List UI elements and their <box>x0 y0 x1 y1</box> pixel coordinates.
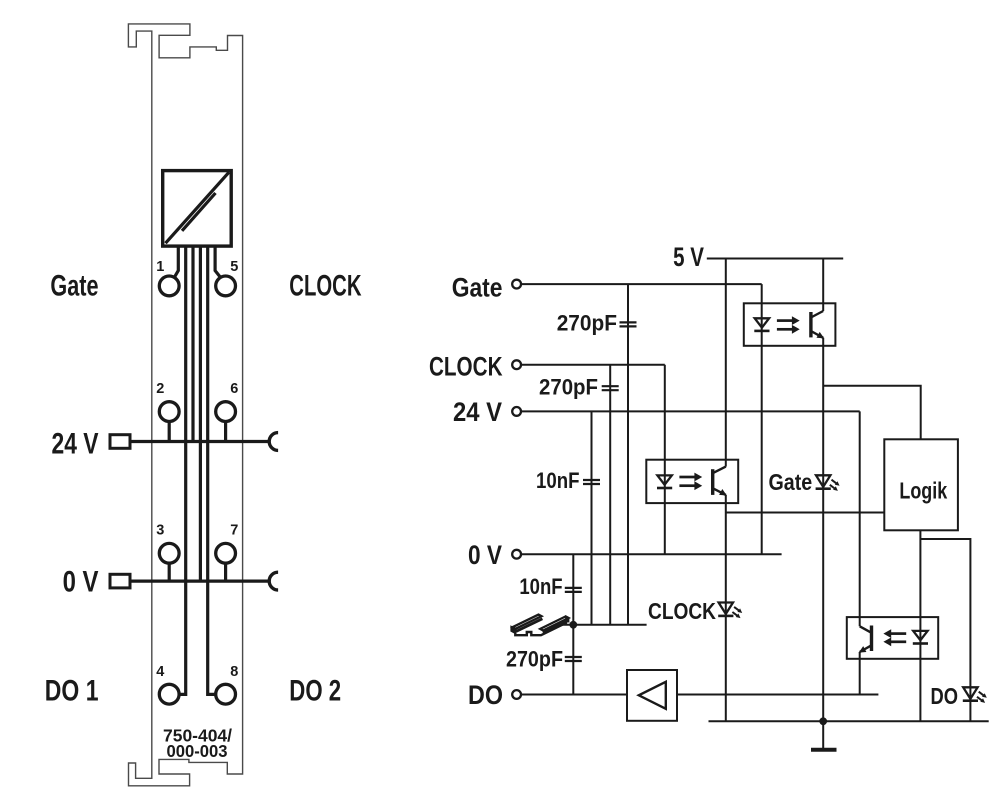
svg-text:Gate: Gate <box>769 469 813 495</box>
svg-text:270pF: 270pF <box>557 310 617 335</box>
svg-text:8: 8 <box>230 664 238 680</box>
svg-text:7: 7 <box>230 523 238 539</box>
svg-text:CLOCK: CLOCK <box>429 351 503 381</box>
svg-text:4: 4 <box>156 664 164 680</box>
svg-text:1: 1 <box>156 259 164 275</box>
svg-text:DO: DO <box>468 680 503 710</box>
svg-text:6: 6 <box>230 381 238 397</box>
svg-text:Gate: Gate <box>50 269 98 302</box>
svg-text:0 V: 0 V <box>63 565 99 598</box>
svg-text:DO: DO <box>931 683 959 709</box>
svg-text:5: 5 <box>230 259 238 275</box>
svg-text:270pF: 270pF <box>506 647 563 672</box>
svg-text:CLOCK: CLOCK <box>648 598 716 624</box>
svg-text:5 V: 5 V <box>673 242 704 272</box>
svg-text:2: 2 <box>156 381 164 397</box>
svg-text:Logik: Logik <box>899 477 948 503</box>
svg-text:24 V: 24 V <box>453 397 502 427</box>
svg-text:10nF: 10nF <box>519 574 562 599</box>
svg-text:0 V: 0 V <box>468 540 502 570</box>
svg-text:DO 2: DO 2 <box>289 675 341 708</box>
svg-text:24 V: 24 V <box>52 427 99 460</box>
svg-text:000-003: 000-003 <box>167 741 228 761</box>
svg-text:Gate: Gate <box>452 272 503 302</box>
svg-text:270pF: 270pF <box>539 374 598 399</box>
svg-text:10nF: 10nF <box>536 468 580 493</box>
svg-text:CLOCK: CLOCK <box>289 269 361 302</box>
svg-text:DO 1: DO 1 <box>45 675 99 708</box>
svg-text:3: 3 <box>156 523 164 539</box>
